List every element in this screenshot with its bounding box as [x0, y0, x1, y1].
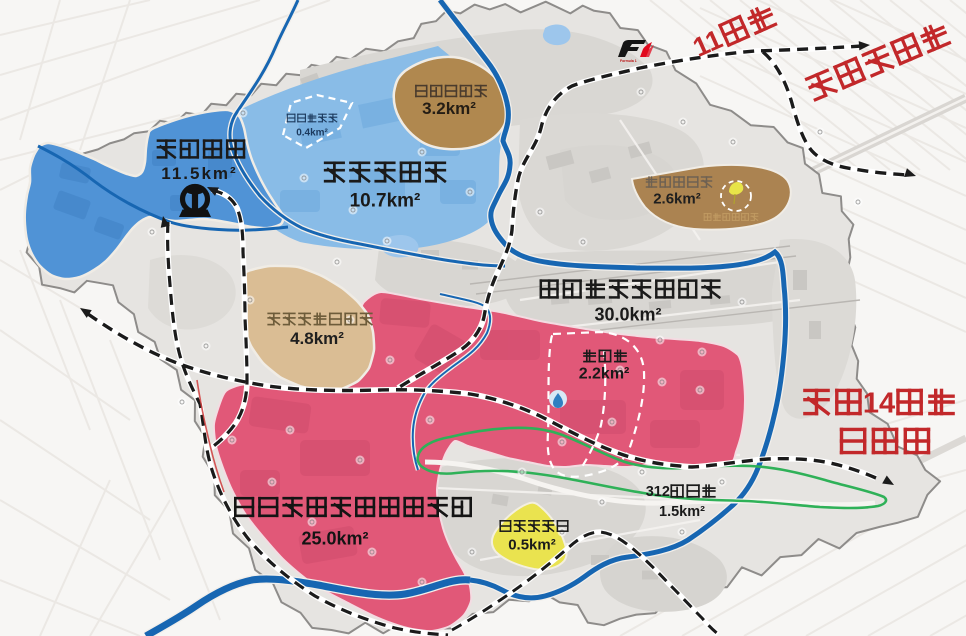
svg-text:0.4km²: 0.4km² [296, 128, 328, 139]
svg-text:4.8km²: 4.8km² [290, 329, 344, 348]
svg-text:1.5km²: 1.5km² [659, 504, 705, 520]
svg-text:0.5km²: 0.5km² [508, 536, 556, 553]
svg-text:Formula 1: Formula 1 [620, 59, 637, 63]
svg-text:312: 312 [646, 484, 670, 500]
svg-text:11.5km²: 11.5km² [161, 164, 237, 183]
svg-text:2.6km²: 2.6km² [653, 190, 701, 207]
svg-text:14: 14 [863, 387, 895, 419]
svg-text:3.2km²: 3.2km² [422, 99, 476, 118]
svg-text:30.0km²: 30.0km² [595, 304, 662, 324]
svg-text:2.2km²: 2.2km² [579, 366, 630, 383]
svg-text:25.0km²: 25.0km² [302, 528, 369, 548]
svg-text:10.7km²: 10.7km² [350, 191, 421, 212]
